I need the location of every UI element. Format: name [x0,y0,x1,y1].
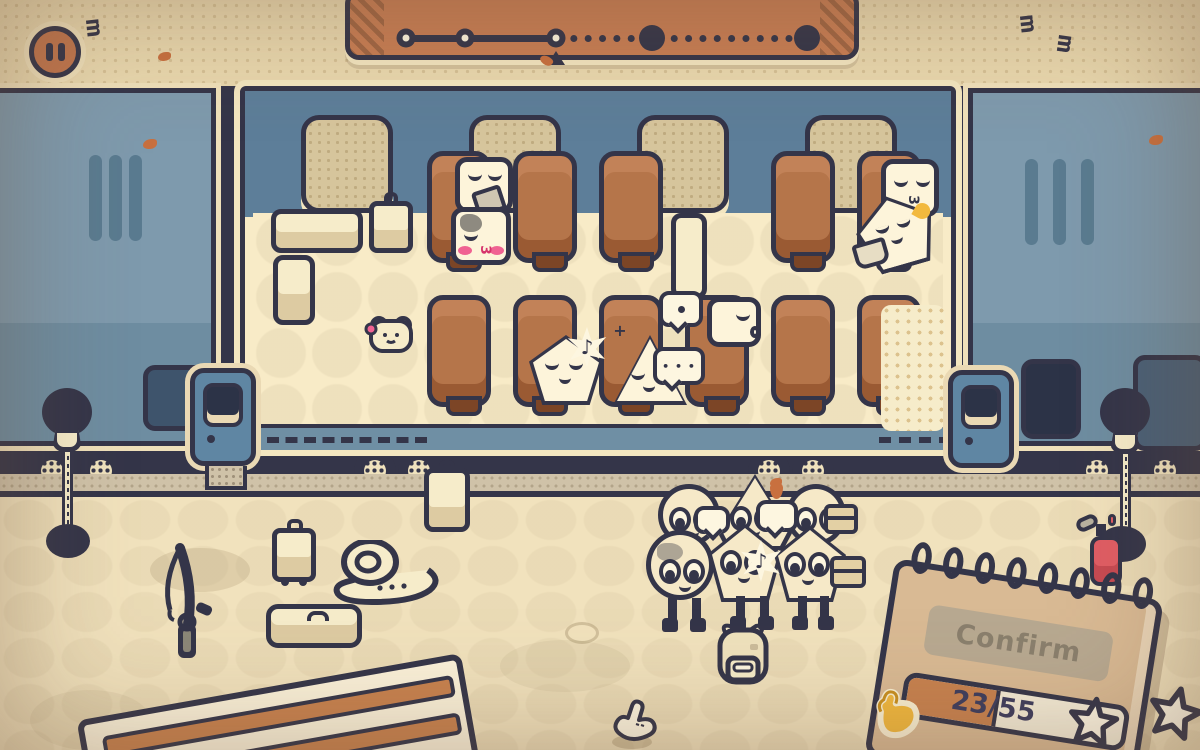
route-stop-major [639,25,665,51]
route-segment [556,35,807,42]
confirm-button[interactable]: Confirm [923,604,1115,682]
car-vent [109,155,122,241]
waiting-passenger[interactable] [646,530,714,600]
door-step [205,466,247,490]
speech-bubble [659,291,703,327]
car-vent [1081,159,1094,245]
car-vent [89,155,102,241]
route-stop-major [794,25,820,51]
bird-squiggle-icon: ᴟ [1019,7,1035,32]
leaf-speck [158,52,171,61]
seat[interactable] [513,151,577,263]
leaf-speck [1149,135,1163,145]
route-stop-visited [396,29,415,48]
entry-mat [881,305,945,431]
route-progress-panel [345,0,859,60]
passenger-newspaper-reader[interactable] [455,157,513,213]
seat[interactable] [771,151,835,263]
stowed-bag-tall[interactable] [273,255,315,325]
passenger-chatty-square[interactable] [707,297,761,347]
game-viewport: 3 3 ♪ + • • [0,0,1200,750]
star-icon[interactable] [1062,691,1124,750]
door-threshold [267,437,427,443]
boarding-clipboard: Confirm 23/55 [864,558,1164,750]
leaf-speck [143,139,157,149]
floor-mark [565,622,599,644]
panel-corner-hatch [350,0,384,55]
floor-stain [500,640,630,692]
teddy-bear[interactable] [363,313,415,359]
car-vent [129,155,142,241]
pause-button[interactable] [24,21,86,83]
car-vent [1025,159,1038,245]
car-window-dark [1021,359,1081,439]
music-note-burst: ♪ [740,540,782,582]
train-door-right[interactable] [948,370,1014,468]
route-stop-visited [547,29,566,48]
suitcase-handle [384,192,398,204]
open-mouth [750,326,760,338]
pause-icon [29,26,81,78]
bird-squiggle-icon: ᴟ [85,11,101,36]
upright-suitcase[interactable] [424,468,470,532]
thumbs-up-icon [860,681,925,746]
carried-parcel [830,556,866,588]
music-note-burst: ♪ [567,327,607,367]
car-window [301,115,393,213]
dots-speech-bubble: • • • [653,347,705,385]
seat[interactable] [599,151,663,263]
fishing-rod[interactable] [146,540,226,660]
route-track [374,33,830,43]
hair-patch [460,214,482,232]
bird-squiggle-icon: ᴟ [1056,27,1073,53]
seat[interactable] [427,295,491,407]
panel-corner-hatch [820,0,854,55]
door-threshold [879,437,951,443]
route-stop-visited [456,29,475,48]
train-car-main: 3 3 ♪ + • • [240,86,956,450]
stowed-suitcase-upright[interactable] [369,201,413,253]
seat[interactable] [771,295,835,407]
long-suitcase[interactable] [266,604,362,648]
car-vent [1053,159,1066,245]
train-door-left[interactable] [190,368,256,466]
cabin-pillar [671,213,707,299]
sparkle-icon: + [609,319,631,341]
hand-cursor-icon [606,698,666,750]
route-segment [406,35,556,42]
passenger-kissing-sleeper[interactable]: 3 [451,207,511,265]
stowed-suitcase-flat[interactable] [271,209,363,253]
train-car-left [0,88,216,446]
backpack[interactable] [712,622,774,688]
